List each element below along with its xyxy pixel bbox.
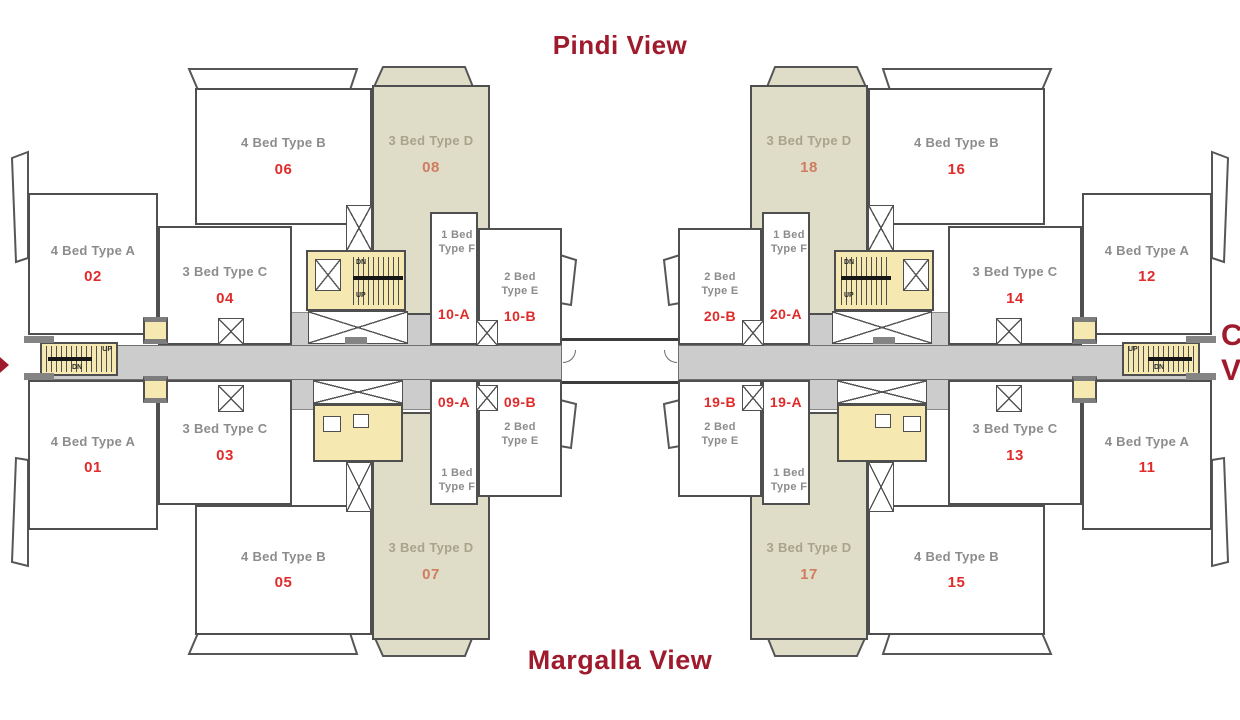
unit-number-label: 02 (84, 268, 102, 285)
stair-void-strip (346, 462, 372, 512)
floor-plan-canvas: Pindi View Margalla View 3 Bed Type D 08… (0, 0, 1240, 720)
unit-10-A: 1 Bed Type F 10-A (430, 212, 478, 345)
unit-number-label: 14 (1006, 290, 1024, 307)
stair-handrail (1148, 357, 1192, 361)
unit-type-label: 4 Bed Type A (1105, 243, 1190, 260)
unit-20-A: 1 Bed Type F 20-A (762, 212, 810, 345)
unit-05: 4 Bed Type B 05 (195, 505, 372, 635)
unit-type-label: 1 Bed Type F (764, 228, 814, 257)
duct-shaft (996, 318, 1022, 345)
stair-dn-label: DN (72, 364, 82, 371)
bathroom-fixture (903, 416, 921, 432)
duct-shaft (742, 385, 764, 411)
elevator-shaft (903, 259, 929, 291)
stair-cap (1186, 373, 1216, 380)
unit-number-label: 01 (84, 459, 102, 476)
stair-dn-label: DN (1154, 364, 1164, 371)
unit-number-label: 10-A (432, 306, 476, 322)
service-core-right-lower (837, 404, 927, 462)
unit-type-label: 3 Bed Type C (183, 421, 268, 438)
unit-number-label: 15 (948, 574, 966, 591)
unit-19-A: 19-A 1 Bed Type F (762, 380, 810, 505)
shaft-tab (873, 337, 895, 344)
unit-type-label: 1 Bed Type F (432, 228, 482, 257)
unit-01: 4 Bed Type A 01 (28, 380, 158, 530)
stair-cap (24, 336, 54, 343)
duct-shaft (218, 385, 244, 412)
unit-number-label: 07 (422, 566, 440, 583)
unit-15: 4 Bed Type B 15 (868, 505, 1045, 635)
unit-number-label: 17 (800, 566, 818, 583)
unit-number-label: 09-A (432, 394, 476, 410)
elevator (1072, 317, 1097, 344)
unit-number-label: 12 (1138, 268, 1156, 285)
unit-type-label: 4 Bed Type A (51, 243, 136, 260)
stair-void-strip (346, 205, 372, 251)
right-view-label-fragment: C V (1221, 318, 1240, 392)
stair-core-west: UP DN (40, 342, 118, 376)
bathroom-fixture (323, 416, 341, 432)
unit-type-label: 2 Bed Type E (495, 420, 545, 449)
unit-number-label: 11 (1139, 459, 1156, 476)
service-core-right-upper: DN UP (834, 250, 934, 311)
bathroom-fixture (353, 414, 369, 428)
duct-shaft (996, 385, 1022, 412)
stair-up-label: UP (1128, 346, 1138, 353)
stair-dn-label: DN (356, 259, 366, 266)
unit-type-label: 3 Bed Type C (183, 264, 268, 281)
stair-handrail (353, 276, 403, 280)
stair-up-label: UP (844, 292, 854, 299)
elevator (1072, 376, 1097, 403)
stair-core-east: UP DN (1122, 342, 1200, 376)
unit-type-label: 3 Bed Type C (973, 264, 1058, 281)
unit-02: 4 Bed Type A 02 (28, 193, 158, 335)
stair-void-strip (868, 462, 894, 512)
unit-type-label: 3 Bed Type C (973, 421, 1058, 438)
unit-number-label: 18 (800, 159, 818, 176)
stair-up-label: UP (102, 346, 112, 353)
right-view-label-line1: C (1221, 318, 1240, 353)
corridor-left-wing (40, 345, 562, 380)
stair-up-label: UP (356, 292, 366, 299)
unit-number-label: 03 (216, 447, 234, 464)
unit-number-label: 04 (216, 290, 234, 307)
elevator (143, 317, 168, 344)
stair-handrail (841, 276, 891, 280)
unit-type-label: 4 Bed Type B (241, 135, 326, 152)
unit-number-label: 13 (1006, 447, 1024, 464)
elevator (143, 376, 168, 403)
service-core-left-upper: DN UP (306, 250, 406, 311)
unit-12: 4 Bed Type A 12 (1082, 193, 1212, 335)
duct-shaft (476, 320, 498, 346)
duct-shaft (742, 320, 764, 346)
unit-number-label: 05 (275, 574, 293, 591)
shaft-tab (345, 337, 367, 344)
unit-type-label: 1 Bed Type F (764, 466, 814, 495)
page-title-pindi-view: Pindi View (0, 30, 1240, 61)
unit-type-label: 3 Bed Type D (389, 540, 474, 557)
stair-cap (24, 373, 54, 380)
duct-shaft (218, 318, 244, 345)
unit-type-label: 1 Bed Type F (432, 466, 482, 495)
void-shaft (837, 380, 927, 404)
unit-number-label: 19-A (764, 394, 808, 410)
stair-handrail (48, 357, 92, 361)
void-shaft (313, 380, 403, 404)
unit-type-label: 3 Bed Type D (767, 540, 852, 557)
stair-void-strip (868, 205, 894, 251)
unit-type-label: 4 Bed Type B (241, 549, 326, 566)
unit-type-label: 4 Bed Type A (1105, 434, 1190, 451)
unit-type-label: 4 Bed Type B (914, 135, 999, 152)
unit-type-label: 2 Bed Type E (495, 270, 545, 299)
unit-type-label: 4 Bed Type A (51, 434, 136, 451)
unit-number-label: 16 (948, 161, 966, 178)
stair-dn-label: DN (844, 259, 854, 266)
unit-type-label: 4 Bed Type B (914, 549, 999, 566)
duct-shaft (476, 385, 498, 411)
service-core-left-lower (313, 404, 403, 462)
unit-type-label: 3 Bed Type D (767, 133, 852, 150)
right-view-label-line2: V (1221, 353, 1240, 388)
unit-09-A: 09-A 1 Bed Type F (430, 380, 478, 505)
bridge-corridor (562, 338, 678, 384)
unit-number-label: 20-A (764, 306, 808, 322)
stair-cap (1186, 336, 1216, 343)
unit-type-label: 2 Bed Type E (695, 270, 745, 299)
unit-16: 4 Bed Type B 16 (868, 88, 1045, 225)
unit-number-label: 08 (422, 159, 440, 176)
unit-type-label: 2 Bed Type E (695, 420, 745, 449)
unit-11: 4 Bed Type A 11 (1082, 380, 1212, 530)
unit-number-label: 06 (275, 161, 293, 178)
unit-type-label: 3 Bed Type D (389, 133, 474, 150)
bathroom-fixture (875, 414, 891, 428)
page-title-margalla-view: Margalla View (0, 645, 1240, 676)
elevator-shaft (315, 259, 341, 291)
